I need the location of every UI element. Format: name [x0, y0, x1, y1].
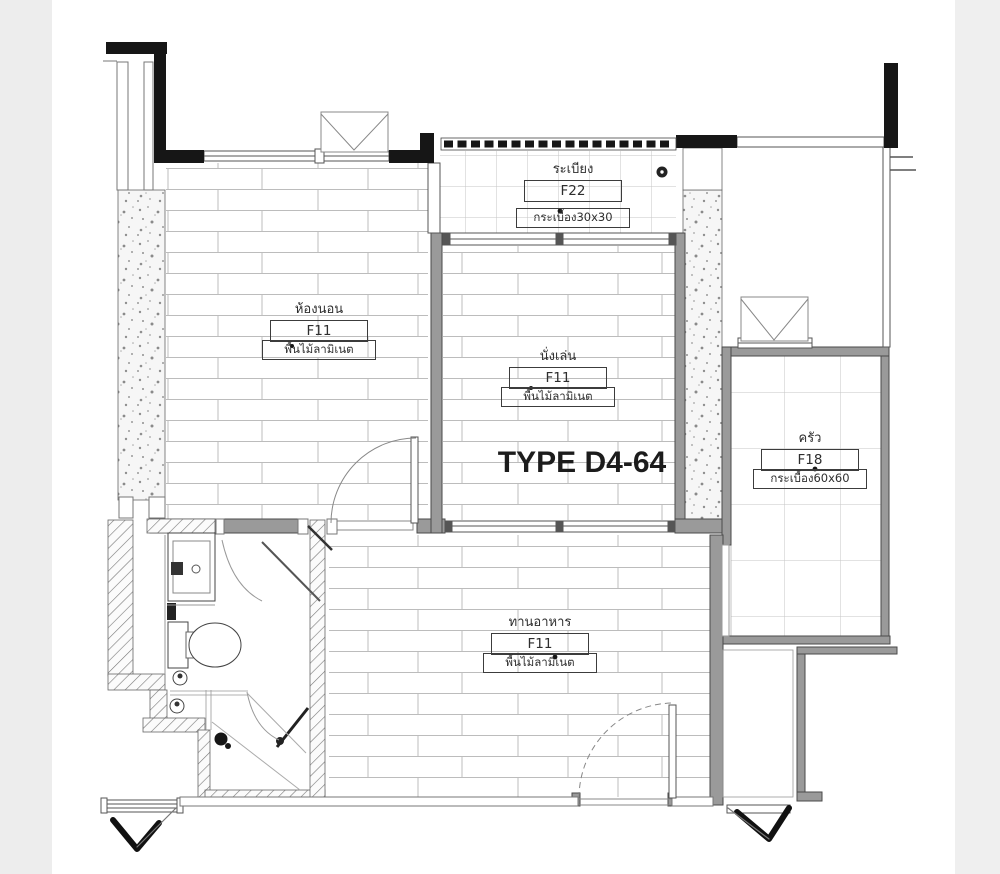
floor-drain-icon — [170, 671, 187, 713]
page-edge-left — [0, 0, 52, 874]
door-direction-marker — [113, 808, 789, 849]
bathroom-window — [104, 800, 180, 812]
bathroom-fixtures — [167, 533, 248, 749]
bedroom-floor — [166, 163, 428, 520]
balcony-railing — [441, 138, 676, 150]
kitchen-floor — [731, 356, 881, 636]
page-edge-right — [955, 0, 1000, 874]
parapet-wall — [737, 137, 884, 147]
dining-floor — [329, 535, 710, 797]
valve-icon — [167, 603, 176, 620]
unit-type-title: TYPE D4-64 — [462, 446, 702, 480]
sink-icon — [168, 533, 215, 601]
toilet-icon — [168, 622, 241, 668]
balcony-drain-icon — [657, 167, 668, 178]
bedroom-door-threshold — [337, 521, 413, 530]
floorplan-drawing — [0, 0, 1000, 874]
balcony-floor — [440, 151, 676, 233]
floorplan-page: ระเบียง F22 กระเบื้อง30x30 ห้องนอน F11 พ… — [0, 0, 1000, 874]
